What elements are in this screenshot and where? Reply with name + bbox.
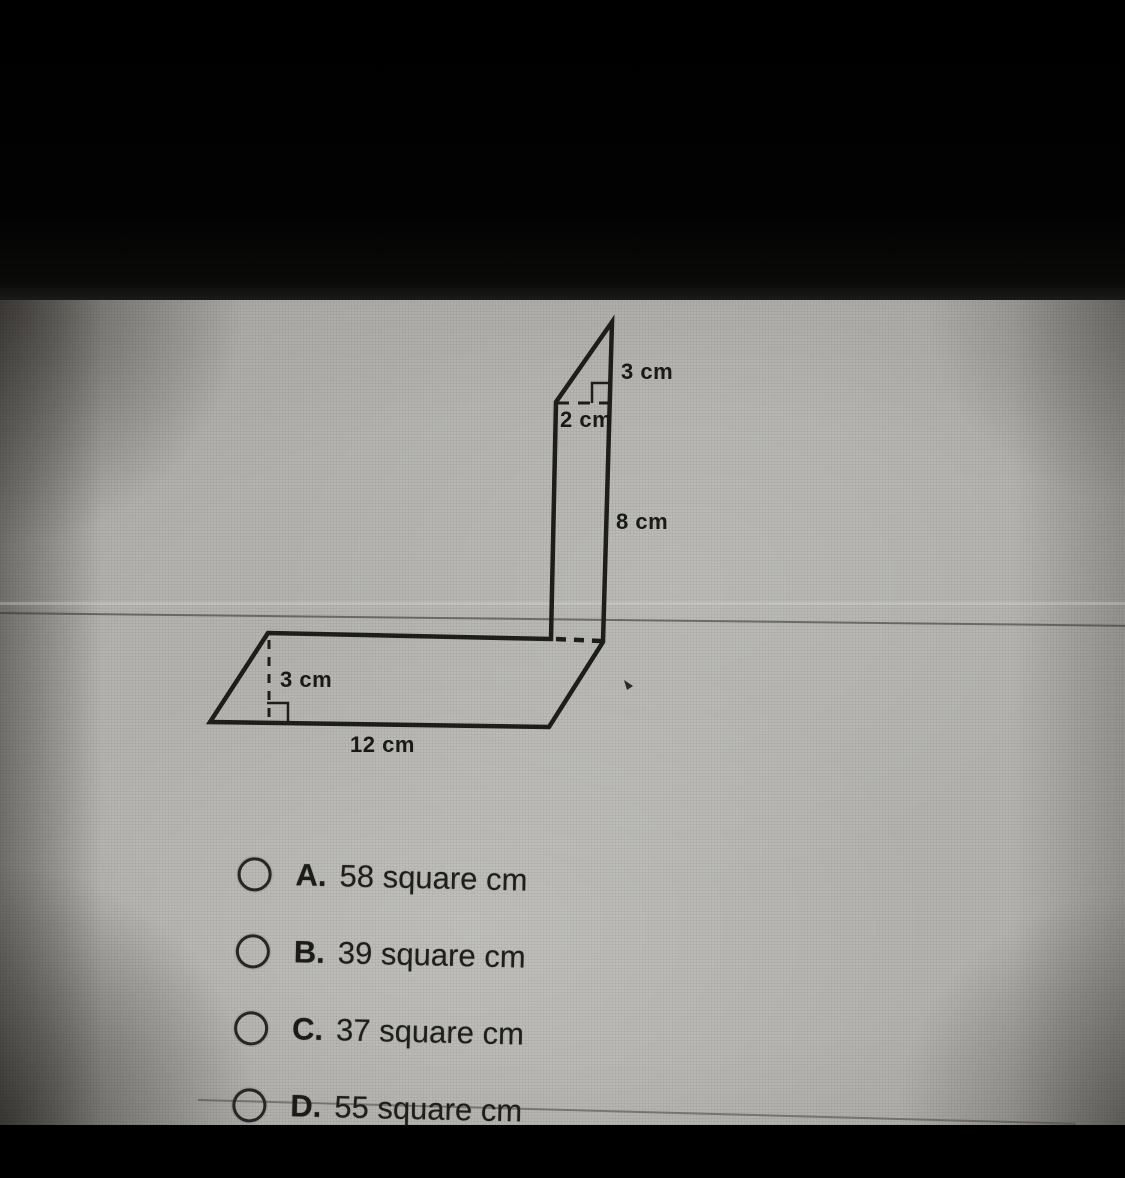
dimension-label-8cm-side: 8 cm bbox=[616, 509, 668, 534]
option-text-b: 39 square cm bbox=[337, 935, 526, 975]
cursor-speck bbox=[624, 680, 633, 690]
composite-figure-outline bbox=[210, 322, 612, 727]
option-letter-d: D. bbox=[290, 1088, 322, 1125]
option-text-a: 58 square cm bbox=[339, 858, 528, 898]
dimension-label-3cm-slant: 3 cm bbox=[621, 359, 673, 384]
option-letter-a: A. bbox=[295, 857, 327, 894]
radio-button-b[interactable] bbox=[235, 934, 270, 969]
option-letter-c: C. bbox=[292, 1011, 324, 1048]
answer-option-d[interactable]: D. 55 square cm bbox=[232, 1088, 793, 1135]
option-text-c: 37 square cm bbox=[336, 1012, 525, 1052]
radio-button-c[interactable] bbox=[234, 1011, 269, 1046]
radio-button-d[interactable] bbox=[232, 1088, 267, 1123]
dimension-label-12cm-base: 12 cm bbox=[350, 732, 415, 757]
option-letter-b: B. bbox=[293, 934, 325, 971]
right-angle-marker-top bbox=[592, 383, 610, 403]
radio-button-a[interactable] bbox=[237, 857, 272, 892]
dimension-label-2cm-width: 2 cm bbox=[560, 407, 612, 432]
photographed-screen: 3 cm 2 cm 8 cm 3 cm 12 cm A. 58 square c… bbox=[0, 0, 1125, 1125]
answer-option-c[interactable]: C. 37 square cm bbox=[234, 1011, 795, 1058]
dimension-label-3cm-height: 3 cm bbox=[280, 667, 332, 692]
hidden-edge-dashes bbox=[556, 639, 601, 641]
option-text-d: 55 square cm bbox=[334, 1089, 523, 1129]
answer-option-b[interactable]: B. 39 square cm bbox=[235, 934, 796, 981]
answer-options-list: A. 58 square cm B. 39 square cm C. 37 sq… bbox=[231, 857, 798, 1178]
